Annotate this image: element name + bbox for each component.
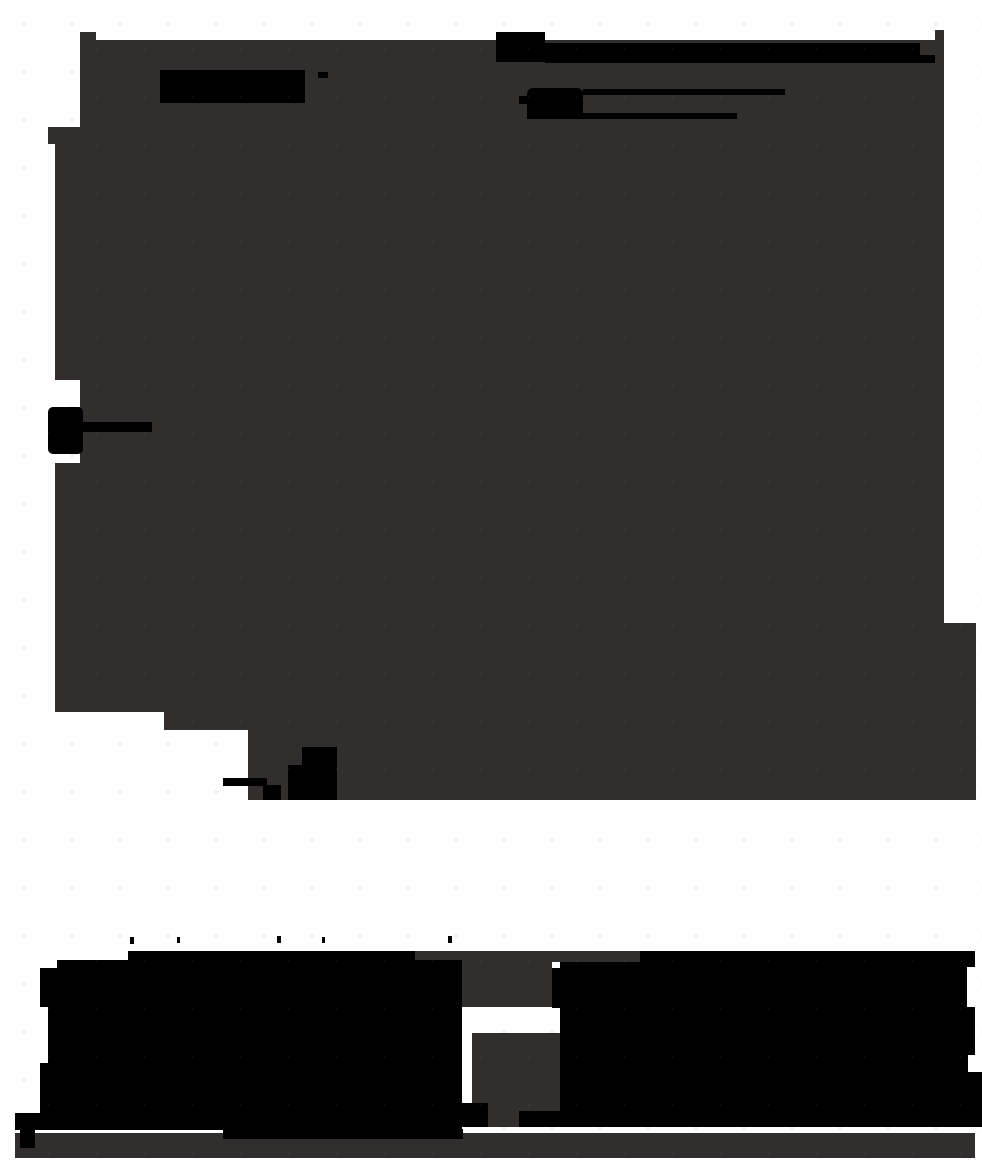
tick-artifact-4 <box>322 937 325 943</box>
silhouette-right-column-top <box>935 30 944 42</box>
silhouette-bottom-strip <box>15 1133 975 1158</box>
silhouette-gap-block-a <box>462 962 552 1007</box>
legend-rule-line-2 <box>527 113 737 119</box>
legend-rule-line-1 <box>583 89 785 95</box>
silhouette-upper-mass <box>55 127 944 730</box>
tick-artifact-5 <box>448 936 452 943</box>
axis-label-blob <box>48 407 83 454</box>
silhouette-gap-top-strip <box>415 951 640 962</box>
black-mass-left <box>40 968 462 1130</box>
bottom-label-dash <box>223 778 267 786</box>
black-mass-right-edge-sliver <box>975 1072 982 1127</box>
tick-artifact-1 <box>130 937 134 944</box>
legend-blob <box>527 88 583 117</box>
redacted-bar-2-tail <box>920 55 935 63</box>
black-mass-right-top-bump <box>640 951 975 962</box>
cutout-bottom-left <box>48 712 164 730</box>
cutout-left-pocket-lower <box>55 453 80 463</box>
redacted-dash-1 <box>318 72 328 78</box>
redacted-bar-2 <box>545 43 920 63</box>
cutout-right-mass-notch-a <box>967 967 982 1007</box>
cutout-right-mass-notch-b <box>968 1055 982 1072</box>
redacted-block-2 <box>496 32 545 62</box>
axis-label-connector-line <box>83 422 152 432</box>
silhouette-top-band <box>80 40 944 127</box>
black-mass-left-top-bump <box>128 951 415 960</box>
black-mass-left-step <box>57 960 462 968</box>
silhouette-corner-bump <box>80 32 96 41</box>
black-mass-foot-bit <box>20 1130 35 1148</box>
black-mass-left-foot <box>15 1113 40 1130</box>
redacted-bar-1 <box>160 70 305 103</box>
gap-glyph-marks <box>462 1103 488 1127</box>
silhouette-lower-right-ext <box>944 623 976 730</box>
cutout-left-pocket-upper <box>55 380 80 407</box>
silhouette-gap-block-b <box>472 1033 560 1112</box>
bottom-label-bits <box>263 785 281 800</box>
tick-artifact-3 <box>277 936 281 943</box>
glitch-bitmap-canvas <box>0 0 982 1167</box>
silhouette-lower-strip <box>248 730 976 800</box>
tick-artifact-2 <box>177 937 180 943</box>
black-mass-left-bottom-step <box>223 1129 463 1139</box>
legend-cross-marker <box>519 96 533 104</box>
silhouette-left-step <box>48 127 55 144</box>
black-mass-right-step <box>552 968 560 1008</box>
black-mass-right <box>560 962 975 1127</box>
cutout-left-mass-pocket <box>40 1007 48 1063</box>
silhouette-gap-block-c <box>472 1112 520 1127</box>
bottom-label-blob-top <box>302 747 337 767</box>
gap-bottom-bits <box>519 1111 568 1127</box>
bottom-label-blob <box>288 765 337 800</box>
